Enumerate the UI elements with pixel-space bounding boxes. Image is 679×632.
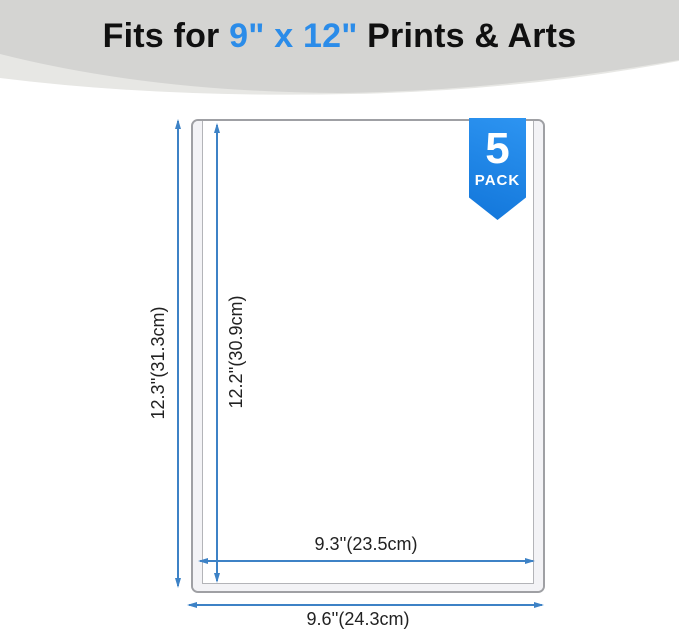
outer-width-label: 9.6''(24.3cm) [258,609,458,630]
outer-height-dimension-line [177,121,179,586]
frame-right-rail [533,121,543,591]
pack-count: 5 [469,127,526,171]
title-prefix: Fits for [103,17,229,55]
inner-height-dimension-line [216,125,218,581]
inner-width-dimension-line [200,560,533,562]
frame-bottom-rail [202,583,534,591]
inner-width-label: 9.3''(23.5cm) [266,534,466,555]
outer-width-dimension-line [189,604,542,606]
page-title: Fits for 9" x 12" Prints & Arts [0,17,679,56]
outer-height-label: 12.3''(31.3cm) [148,293,170,433]
frame-left-rail [193,121,203,591]
pack-label: PACK [469,172,526,189]
title-size-highlight: 9" x 12" [229,17,357,55]
product-dimension-diagram: Fits for 9" x 12" Prints & Arts 5 PACK 1… [0,0,679,632]
title-suffix: Prints & Arts [358,17,577,55]
inner-height-label: 12.2''(30.9cm) [226,282,248,422]
